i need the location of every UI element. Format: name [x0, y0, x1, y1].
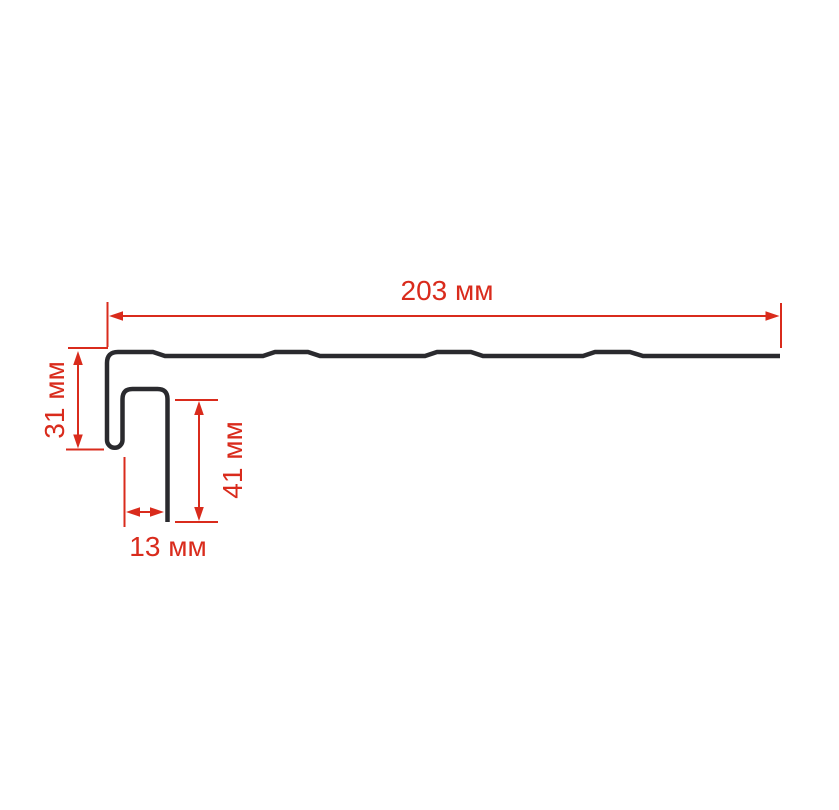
arrowhead-right: [150, 507, 164, 517]
arrowhead-right: [766, 311, 780, 321]
arrowhead-up: [73, 351, 83, 365]
dim-channel-depth-label: 41 мм: [217, 421, 248, 498]
dim-channel-depth: 41 мм: [175, 400, 248, 522]
profile-outline: [107, 352, 780, 522]
dim-left-height-label: 31 мм: [39, 361, 70, 438]
dim-channel-width-label: 13 мм: [129, 531, 206, 562]
profile-dimension-drawing: 203 мм 31 мм 41 мм 13 мм: [0, 0, 839, 810]
arrowhead-down: [194, 507, 204, 521]
dim-left-height: 31 мм: [39, 348, 108, 450]
arrowhead-left: [109, 311, 123, 321]
dim-length-label: 203 мм: [401, 275, 494, 306]
arrowhead-up: [194, 401, 204, 415]
arrowhead-down: [73, 435, 83, 449]
drawing-canvas: 203 мм 31 мм 41 мм 13 мм: [0, 0, 839, 810]
arrowhead-left: [126, 507, 140, 517]
dim-length: 203 мм: [108, 275, 782, 348]
